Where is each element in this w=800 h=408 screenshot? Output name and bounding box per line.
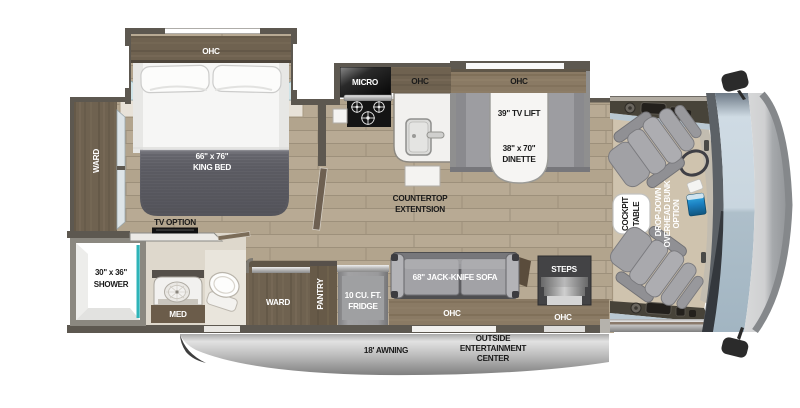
svg-text:MICRO: MICRO xyxy=(352,78,379,87)
svg-text:66" x 76": 66" x 76" xyxy=(196,152,229,161)
svg-text:PANTRY: PANTRY xyxy=(316,278,325,310)
svg-text:TABLE: TABLE xyxy=(632,201,641,227)
svg-text:FRIDGE: FRIDGE xyxy=(348,302,378,311)
svg-text:WARD: WARD xyxy=(92,149,101,173)
svg-text:OPTION: OPTION xyxy=(672,199,681,228)
svg-text:DINETTE: DINETTE xyxy=(502,155,536,164)
svg-text:CENTER: CENTER xyxy=(477,354,509,363)
svg-text:38" x 70": 38" x 70" xyxy=(503,144,536,153)
svg-text:OUTSIDE: OUTSIDE xyxy=(476,334,511,343)
svg-text:COUNTERTOP: COUNTERTOP xyxy=(393,194,448,203)
svg-text:OHC: OHC xyxy=(443,309,461,318)
svg-text:OHC: OHC xyxy=(202,47,220,56)
svg-text:OHC: OHC xyxy=(411,77,429,86)
svg-text:EXTENTSION: EXTENTSION xyxy=(395,205,445,214)
svg-text:SHOWER: SHOWER xyxy=(94,280,129,289)
svg-text:30" x 36": 30" x 36" xyxy=(95,268,127,277)
svg-text:10 CU. FT.: 10 CU. FT. xyxy=(345,291,382,300)
svg-text:39" TV LIFT: 39" TV LIFT xyxy=(498,109,541,118)
svg-text:COCKPIT: COCKPIT xyxy=(621,197,630,231)
svg-text:WARD: WARD xyxy=(266,298,290,307)
svg-text:OVERHEAD BUNK: OVERHEAD BUNK xyxy=(663,180,672,247)
svg-text:STEPS: STEPS xyxy=(551,265,577,274)
svg-text:MED: MED xyxy=(169,310,187,319)
svg-text:68" JACK-KNIFE SOFA: 68" JACK-KNIFE SOFA xyxy=(413,273,498,282)
svg-text:ENTERTAINMENT: ENTERTAINMENT xyxy=(460,344,526,353)
svg-text:OHC: OHC xyxy=(510,77,528,86)
svg-text:18' AWNING: 18' AWNING xyxy=(364,346,408,355)
svg-text:TV OPTION: TV OPTION xyxy=(154,218,196,227)
svg-text:KING BED: KING BED xyxy=(193,163,231,172)
svg-text:DROP-DOWN: DROP-DOWN xyxy=(654,187,663,236)
svg-text:OHC: OHC xyxy=(554,313,572,322)
